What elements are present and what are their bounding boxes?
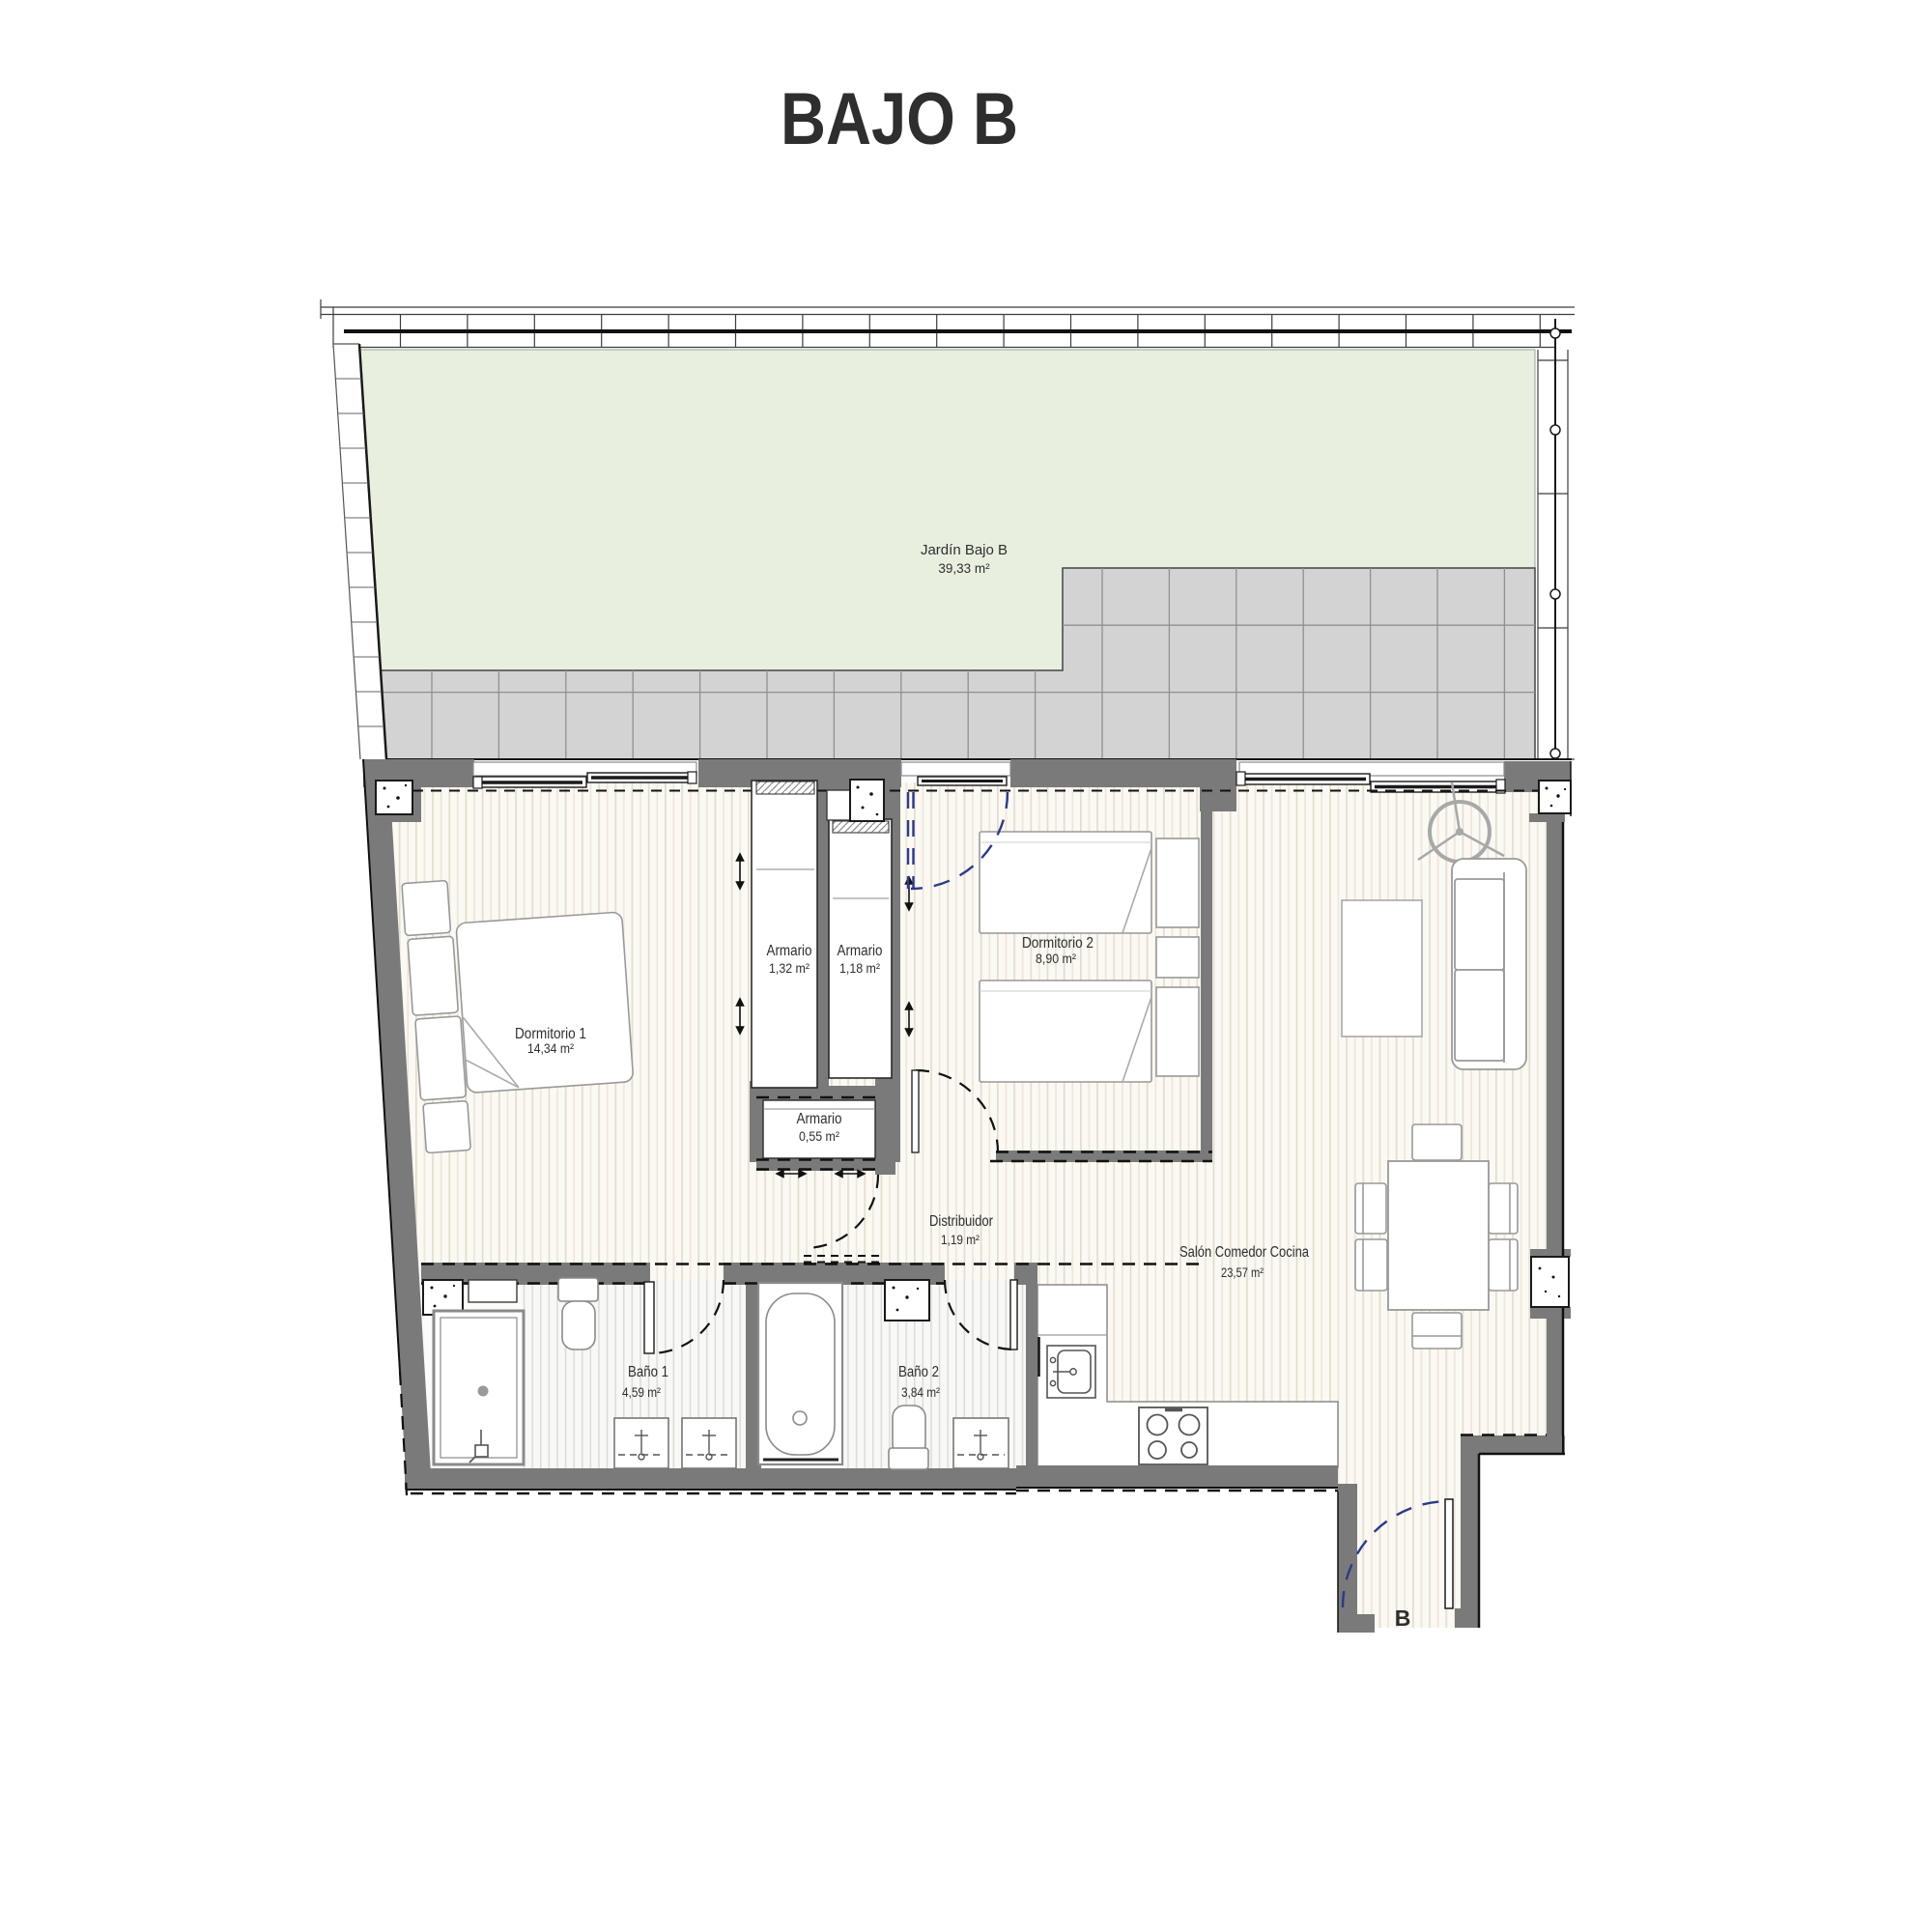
svg-text:Armario: Armario xyxy=(797,1111,842,1127)
svg-text:23,57 m²: 23,57 m² xyxy=(1221,1265,1264,1280)
svg-text:Baño 2: Baño 2 xyxy=(898,1364,939,1380)
svg-text:Jardín Bajo B: Jardín Bajo B xyxy=(921,542,1008,558)
svg-text:B: B xyxy=(1395,1605,1411,1631)
svg-text:0,55 m²: 0,55 m² xyxy=(799,1129,839,1144)
svg-text:Baño 1: Baño 1 xyxy=(628,1364,668,1380)
svg-text:8,90 m²: 8,90 m² xyxy=(1036,952,1076,966)
svg-text:Dormitorio 1: Dormitorio 1 xyxy=(515,1026,586,1042)
svg-text:Salón Comedor Cocina: Salón Comedor Cocina xyxy=(1179,1244,1309,1261)
svg-text:1,19 m²: 1,19 m² xyxy=(941,1233,980,1247)
svg-text:Distribuidor: Distribuidor xyxy=(929,1213,993,1230)
svg-text:1,18 m²: 1,18 m² xyxy=(839,961,880,976)
svg-text:Armario: Armario xyxy=(838,943,883,959)
svg-text:1,32 m²: 1,32 m² xyxy=(769,961,810,976)
svg-text:3,84 m²: 3,84 m² xyxy=(901,1385,940,1400)
svg-text:Dormitorio 2: Dormitorio 2 xyxy=(1022,935,1094,952)
svg-text:4,59 m²: 4,59 m² xyxy=(622,1385,661,1400)
svg-text:BAJO B: BAJO B xyxy=(781,78,1018,160)
svg-text:Armario: Armario xyxy=(767,943,812,959)
svg-text:14,34 m²: 14,34 m² xyxy=(527,1041,574,1056)
svg-text:39,33 m²: 39,33 m² xyxy=(938,561,990,576)
